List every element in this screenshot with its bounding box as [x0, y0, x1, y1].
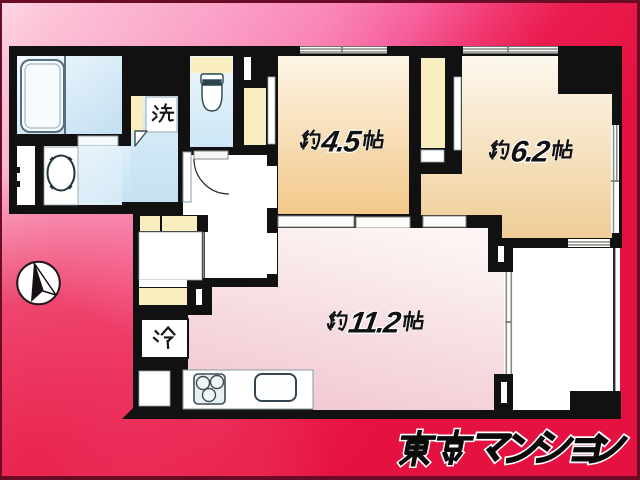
svg-text:6.2: 6.2 — [508, 136, 552, 169]
svg-text:11.2: 11.2 — [346, 307, 403, 340]
